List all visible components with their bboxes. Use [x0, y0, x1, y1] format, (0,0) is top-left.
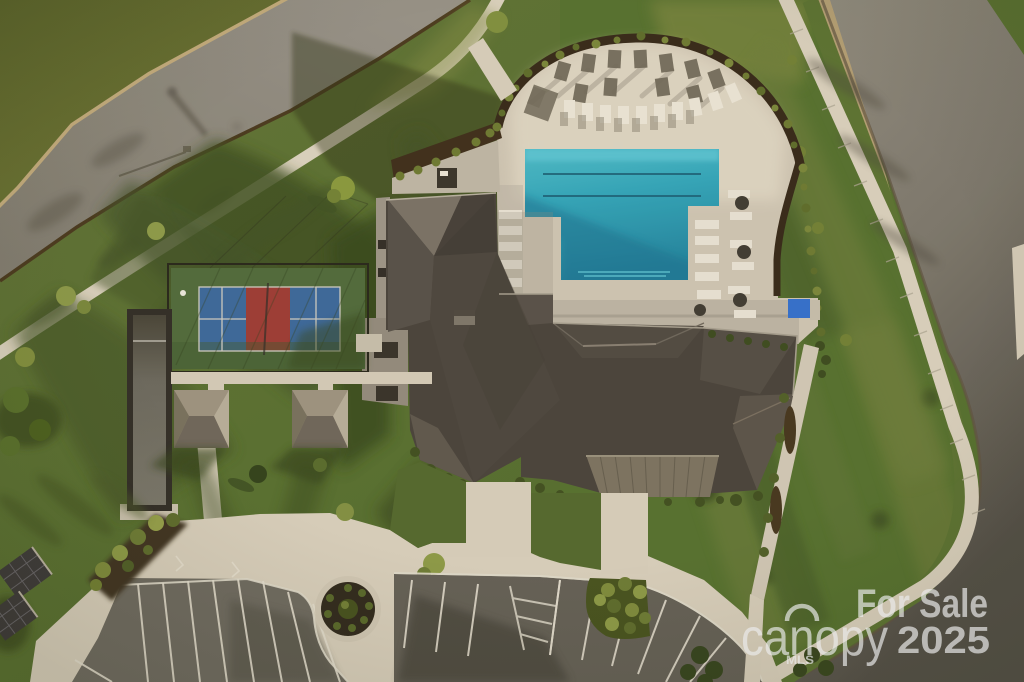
svg-text:2025: 2025 [897, 620, 990, 662]
svg-text:MLS: MLS [786, 653, 814, 667]
